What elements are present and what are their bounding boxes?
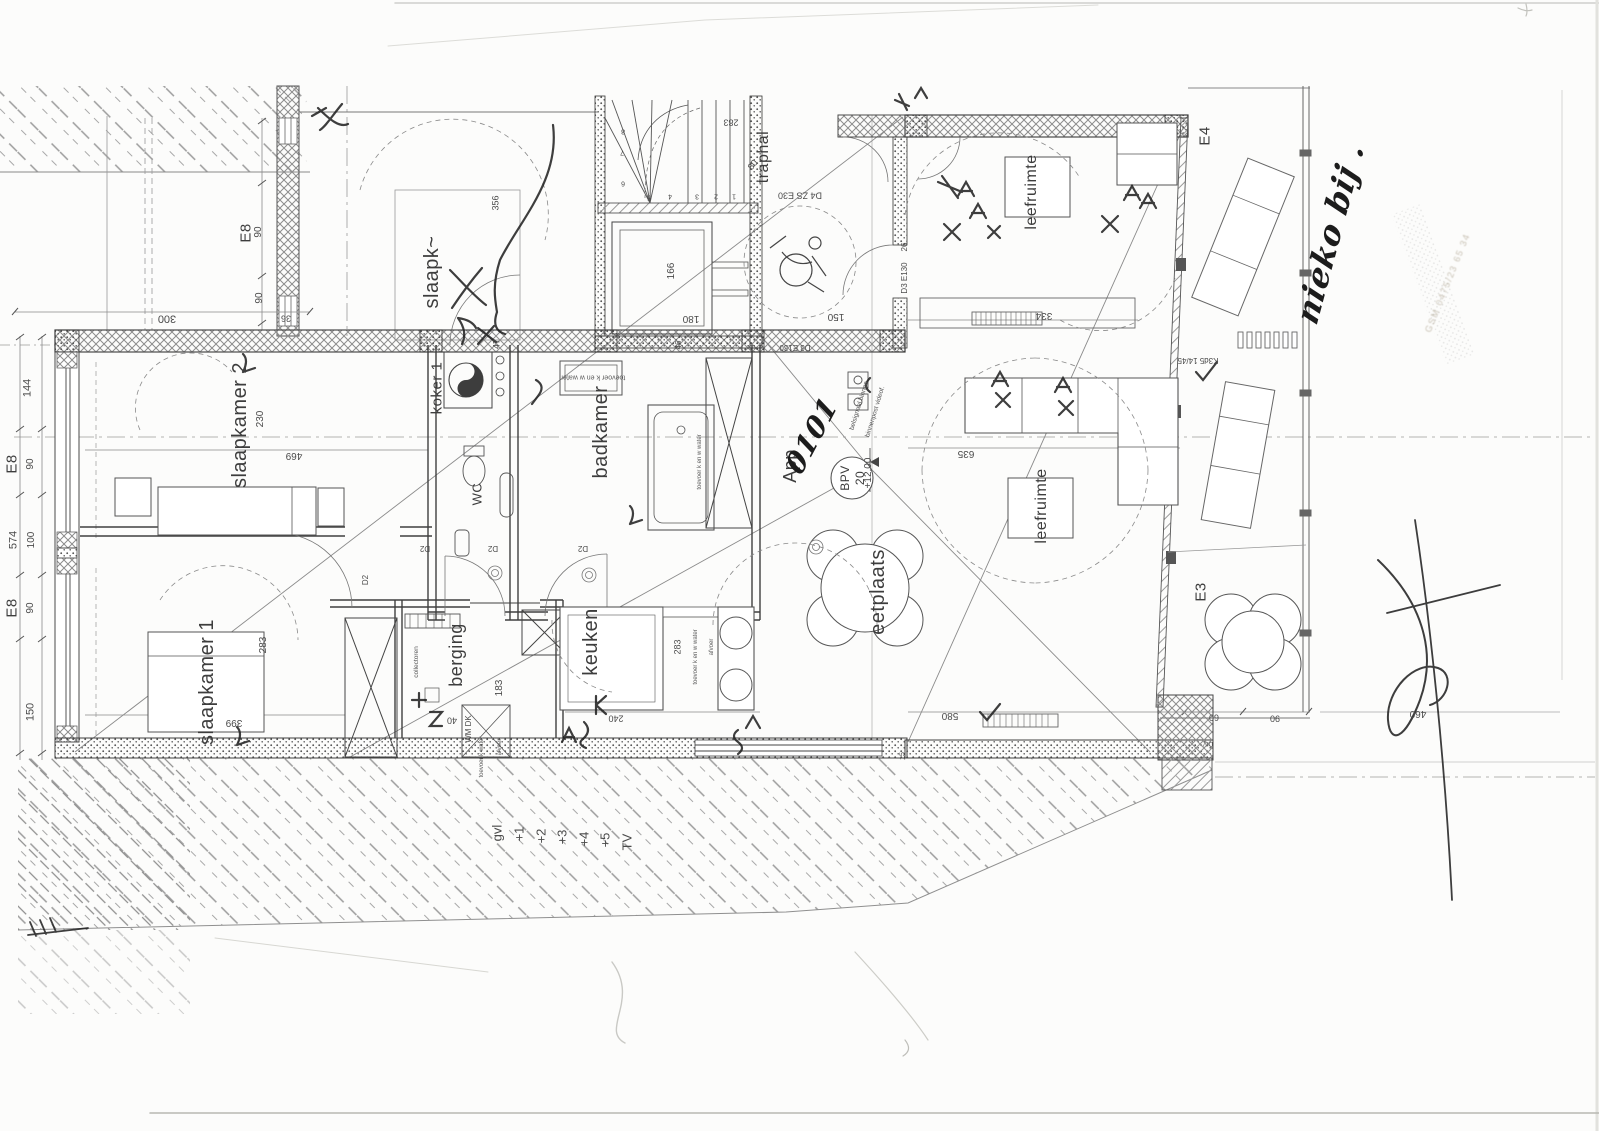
stairwell — [595, 96, 762, 348]
lounger-1 — [1192, 158, 1295, 316]
stair-treads — [605, 100, 744, 203]
terrain-hatch-bottom — [18, 758, 1212, 930]
videophone-panels — [848, 372, 868, 410]
scanned-floorplan-sheet: slaapk~slaapkamer 2slaapkamer 1koker 1ba… — [0, 0, 1599, 1131]
shafts — [345, 358, 752, 757]
terrain-hatch-topleft — [0, 86, 312, 172]
lounger-2 — [1201, 382, 1275, 529]
stamp-smudge — [1391, 204, 1474, 365]
wheelchair-icon — [770, 236, 826, 292]
electrical-symbols — [488, 540, 823, 582]
terrain-hatch-bottomleft — [18, 758, 190, 930]
bpv-circle — [831, 457, 873, 499]
entry-hall — [744, 115, 907, 499]
terrain-hatch — [0, 86, 1212, 1014]
kitchen-counters — [552, 607, 754, 710]
floorplan-drawing — [0, 0, 1599, 1131]
elevator — [595, 222, 762, 348]
grating — [1238, 332, 1297, 348]
bedroom-furniture — [115, 353, 344, 732]
koker-washing-machine — [444, 352, 504, 408]
badkamer-fixtures — [560, 361, 714, 530]
berging-equipment — [405, 614, 510, 757]
wc-fixtures — [455, 446, 513, 556]
terrace-e3-table — [1205, 594, 1301, 690]
door-swings — [277, 533, 607, 616]
window-bottom — [695, 740, 882, 756]
